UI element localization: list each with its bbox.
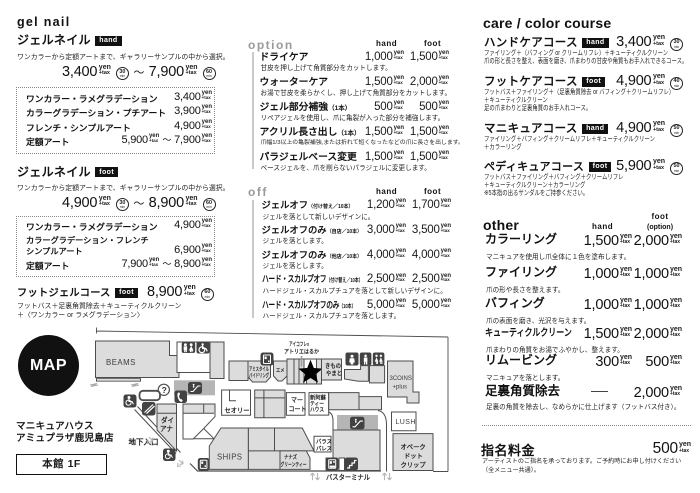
svg-text:パレス: パレス xyxy=(316,445,332,453)
svg-text:ドット: ドット xyxy=(404,452,423,460)
svg-text:ハウス: ハウス xyxy=(310,406,324,414)
svg-text:ティー: ティー xyxy=(310,401,324,408)
svg-text:3COINS: 3COINS xyxy=(390,376,412,382)
svg-text:きもの: きもの xyxy=(325,362,341,370)
svg-text:アナ: アナ xyxy=(160,425,173,433)
svg-text:グリーンティー: グリーンティー xyxy=(281,461,307,469)
svg-text:バラス: バラス xyxy=(316,439,332,446)
svg-text:アミスタイル: アミスタイル xyxy=(249,365,269,373)
svg-text:アトリエはるか: アトリエはるか xyxy=(284,349,319,356)
svg-text:クリップ: クリップ xyxy=(401,460,427,469)
svg-text:オベーク: オベーク xyxy=(401,442,426,451)
svg-text:SHIPS: SHIPS xyxy=(217,453,242,462)
svg-text:ナナズ: ナナズ xyxy=(284,453,297,461)
svg-text:マー: マー xyxy=(291,396,303,404)
svg-text:アイコフレx: アイコフレx xyxy=(289,341,309,348)
svg-text:新阿蘇: 新阿蘇 xyxy=(310,394,326,402)
svg-text:ダイ: ダイ xyxy=(161,416,174,425)
svg-text:バスターミナル: バスターミナル xyxy=(326,473,370,482)
svg-text:?: ? xyxy=(162,385,167,395)
svg-text:LUSH: LUSH xyxy=(396,419,416,426)
svg-text:地下入口: 地下入口 xyxy=(129,437,159,447)
svg-text:セオリー: セオリー xyxy=(225,407,250,415)
svg-text:やまと: やまと xyxy=(326,370,342,378)
svg-text:+plus: +plus xyxy=(393,385,408,391)
svg-text:バイドリング: バイドリング xyxy=(249,372,269,380)
svg-text:コート: コート xyxy=(289,405,307,413)
svg-text:BEAMS: BEAMS xyxy=(106,358,136,367)
svg-text:エメ: エメ xyxy=(276,368,285,374)
